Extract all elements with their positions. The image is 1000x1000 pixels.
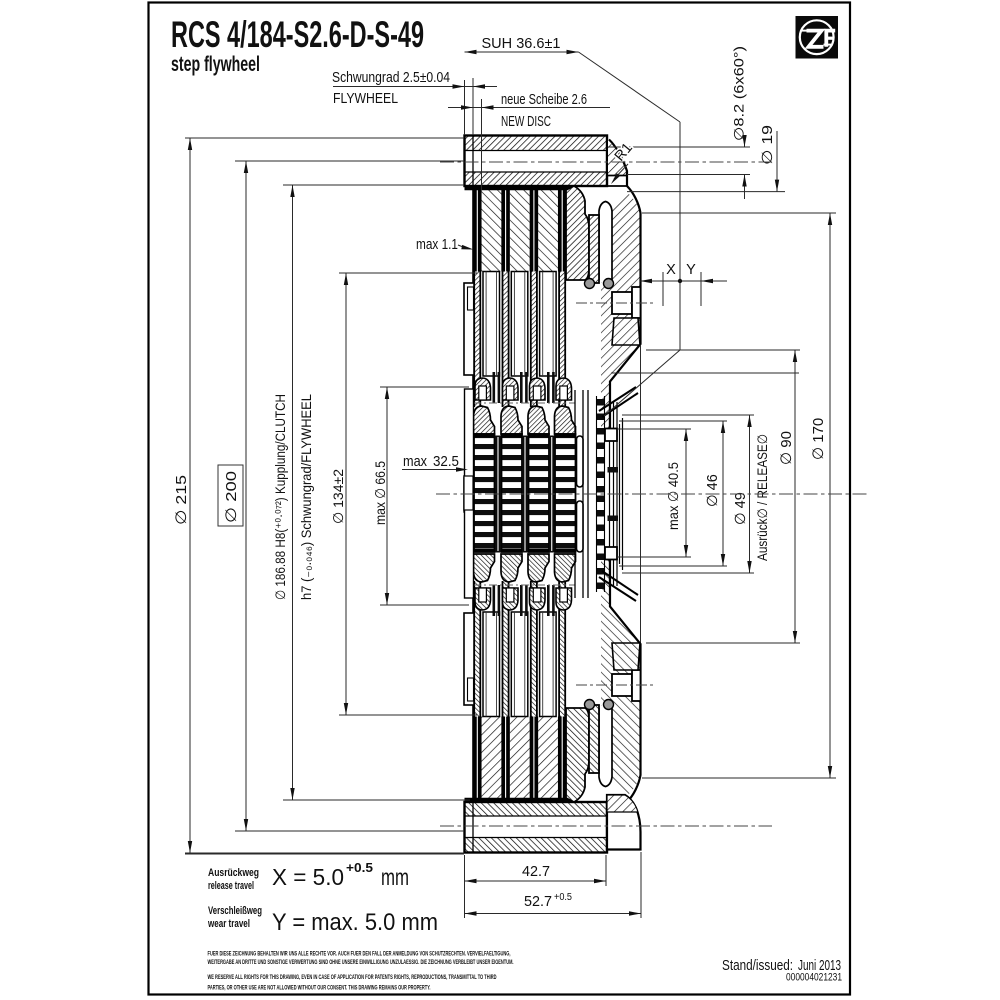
svg-text:X = 5.0: X = 5.0	[272, 864, 344, 890]
svg-text:max ∅ 40.5: max ∅ 40.5	[665, 462, 681, 530]
svg-text:wear travel: wear travel	[207, 918, 250, 930]
svg-text:∅ 46: ∅ 46	[705, 474, 721, 507]
svg-text:h7 (₋₀.₀₄₆) Schwungrad/FLYWHEE: h7 (₋₀.₀₄₆) Schwungrad/FLYWHEEL	[299, 394, 314, 600]
svg-text:∅ 134±2: ∅ 134±2	[330, 469, 346, 524]
svg-text:Ausrück∅ / RELEASE∅: Ausrück∅ / RELEASE∅	[755, 434, 770, 561]
svg-text:Stand/issued:: Stand/issued:	[722, 957, 793, 974]
svg-text:mm: mm	[381, 864, 409, 890]
svg-text:FLYWHEEL: FLYWHEEL	[333, 91, 398, 107]
svg-text:∅ 200: ∅ 200	[223, 471, 240, 523]
svg-text:32.5: 32.5	[433, 454, 459, 470]
svg-text:∅ 19: ∅ 19	[760, 125, 776, 165]
svg-text:WEITERGABE AN DRITTE UND SONST: WEITERGABE AN DRITTE UND SONSTIGE VERWER…	[208, 959, 514, 966]
svg-text:Schwungrad 2.5±0.04: Schwungrad 2.5±0.04	[332, 70, 450, 86]
svg-text:Y = max. 5.0 mm: Y = max. 5.0 mm	[272, 909, 438, 936]
svg-text:SUH 36.6±1: SUH 36.6±1	[482, 36, 561, 52]
svg-text:42.7: 42.7	[522, 863, 550, 880]
svg-text:Y: Y	[686, 262, 696, 278]
svg-text:max ∅ 66.5: max ∅ 66.5	[372, 461, 388, 525]
svg-text:000004021231: 000004021231	[786, 972, 842, 984]
svg-text:Verschleißweg: Verschleißweg	[208, 905, 262, 917]
svg-text:neue Scheibe 2.6: neue Scheibe 2.6	[501, 92, 587, 108]
svg-text:PARTIES, OR OTHER USE ARE NOT: PARTIES, OR OTHER USE ARE NOT ALLOWED WI…	[208, 985, 431, 992]
svg-text:Ausrückweg: Ausrückweg	[208, 867, 259, 879]
svg-text:∅ 49: ∅ 49	[733, 492, 749, 525]
svg-text:RCS 4/184-S2.6-D-S-49: RCS 4/184-S2.6-D-S-49	[171, 14, 424, 55]
svg-text:release travel: release travel	[208, 880, 254, 892]
svg-text:+0.5: +0.5	[554, 892, 572, 903]
svg-text:∅ 90: ∅ 90	[778, 431, 795, 465]
svg-text:X: X	[666, 262, 676, 278]
svg-text:max: max	[403, 454, 428, 470]
svg-text:∅ 215: ∅ 215	[173, 475, 190, 525]
svg-text:+0.5: +0.5	[346, 861, 373, 875]
svg-text:52.7: 52.7	[524, 893, 552, 910]
svg-text:WE RESERVE ALL RIGHTS FOR THIS: WE RESERVE ALL RIGHTS FOR THIS DRAWING, …	[208, 974, 497, 981]
svg-text:max 1.1: max 1.1	[416, 237, 458, 253]
svg-text:∅8.2 (6x60°): ∅8.2 (6x60°)	[732, 46, 747, 141]
svg-text:step flywheel: step flywheel	[171, 53, 260, 76]
svg-text:∅ 186.88 H8(⁺⁰·⁰⁷²) Kupplung/C: ∅ 186.88 H8(⁺⁰·⁰⁷²) Kupplung/CLUTCH	[273, 394, 288, 600]
svg-text:∅ 170: ∅ 170	[810, 418, 827, 460]
svg-text:FUER DIESE ZEICHNUNG BEHALTEN: FUER DIESE ZEICHNUNG BEHALTEN WIR UNS AL…	[208, 951, 511, 958]
svg-text:NEW DISC: NEW DISC	[501, 114, 551, 130]
